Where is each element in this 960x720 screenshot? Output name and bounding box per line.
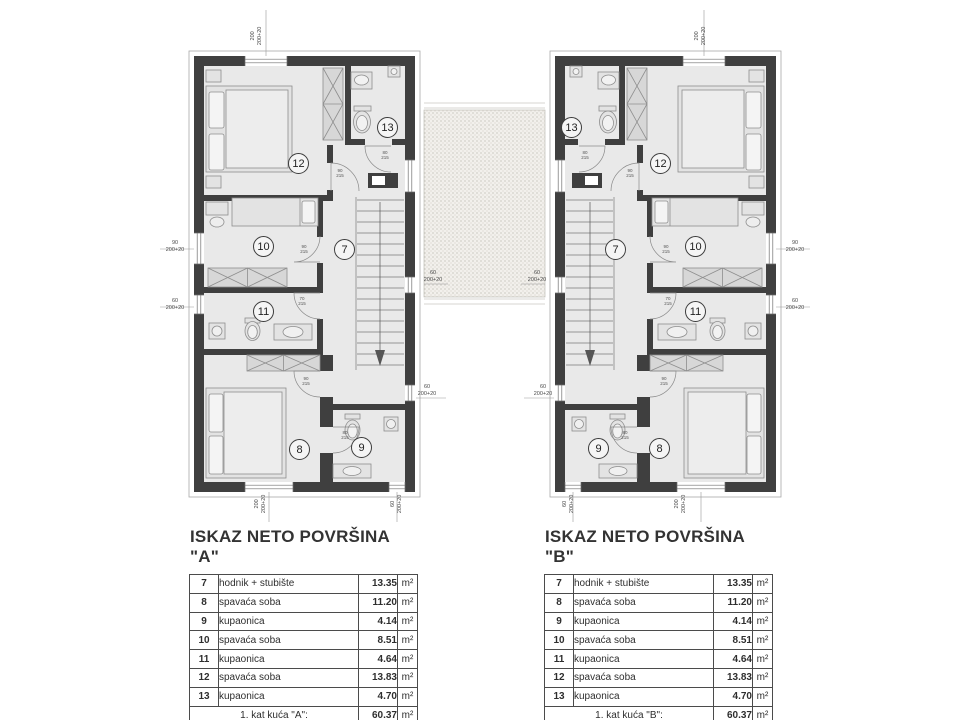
- room-circle-a-9: 9: [351, 437, 372, 458]
- cell-num: 8: [545, 593, 574, 612]
- cell-name: kupaonica: [219, 687, 359, 706]
- table-row: 12 spavaća soba 13.83 m²: [545, 668, 773, 687]
- floor-plan-drawing: [0, 0, 960, 524]
- room-circle-a-10: 10: [253, 236, 274, 257]
- door-label: 90 215: [623, 168, 637, 179]
- cell-value: 8.51: [714, 631, 753, 650]
- door-label: 90 215: [299, 376, 313, 387]
- table-row: 13 kupaonica 4.70 m²: [545, 687, 773, 706]
- dim-label: 60 200+20: [562, 491, 576, 517]
- cell-value: 13.83: [359, 668, 398, 687]
- cell-num: 13: [545, 687, 574, 706]
- cell-num: 7: [190, 575, 219, 594]
- table-row: 11 kupaonica 4.64 m²: [545, 650, 773, 669]
- cell-num: 11: [545, 650, 574, 669]
- area-table-a: ISKAZ NETO POVRŠINA "A" 7 hodnik + stubi…: [189, 527, 415, 720]
- cell-name: kupaonica: [219, 650, 359, 669]
- table-b: 7 hodnik + stubište 13.35 m² 8 spavaća s…: [544, 574, 773, 720]
- table-row: 11 kupaonica 4.64 m²: [190, 650, 418, 669]
- cell-unit: m²: [398, 612, 418, 631]
- cell-num: 12: [190, 668, 219, 687]
- cell-value: 4.70: [359, 687, 398, 706]
- cell-name: spavaća soba: [574, 631, 714, 650]
- cell-unit: m²: [753, 706, 773, 720]
- room-circle-b-7: 7: [605, 239, 626, 260]
- cell-num: 11: [190, 650, 219, 669]
- table-total-row: 1. kat kuća "A": 60.37 m²: [190, 706, 418, 720]
- cell-name: kupaonica: [574, 612, 714, 631]
- door-label: 80 215: [618, 430, 632, 441]
- cell-name: kupaonica: [574, 687, 714, 706]
- house-b: [550, 51, 781, 497]
- door-label: 70 215: [295, 296, 309, 307]
- area-table-b: ISKAZ NETO POVRŠINA "B" 7 hodnik + stubi…: [544, 527, 770, 720]
- table-total-row: 1. kat kuća "B": 60.37 m²: [545, 706, 773, 720]
- cell-value: 13.35: [359, 575, 398, 594]
- dim-label: 200 200+20: [694, 23, 708, 49]
- cell-name: spavaća soba: [219, 593, 359, 612]
- dim-label: 60 200+20: [420, 270, 446, 284]
- table-row: 10 spavaća soba 8.51 m²: [190, 631, 418, 650]
- room-circle-b-10: 10: [685, 236, 706, 257]
- cell-unit: m²: [398, 631, 418, 650]
- table-row: 12 spavaća soba 13.83 m²: [190, 668, 418, 687]
- cell-unit: m²: [398, 706, 418, 720]
- table-row: 7 hodnik + stubište 13.35 m²: [545, 575, 773, 594]
- dim-label: 200 200+20: [250, 23, 264, 49]
- dim-label: 90 200+20: [782, 240, 808, 254]
- cell-value: 11.20: [359, 593, 398, 612]
- room-circle-a-8: 8: [289, 439, 310, 460]
- door-label: 90 215: [659, 244, 673, 255]
- door-label: 90 215: [333, 168, 347, 179]
- cell-unit: m²: [753, 687, 773, 706]
- cell-unit: m²: [753, 631, 773, 650]
- cell-value: 4.14: [359, 612, 398, 631]
- room-circle-b-11: 11: [685, 301, 706, 322]
- cell-value: 4.64: [714, 650, 753, 669]
- cell-num: 13: [190, 687, 219, 706]
- room-circle-a-7: 7: [334, 239, 355, 260]
- dim-label: 90 200+20: [162, 240, 188, 254]
- table-row: 8 spavaća soba 11.20 m²: [190, 593, 418, 612]
- cell-value: 4.14: [714, 612, 753, 631]
- cell-value: 4.64: [359, 650, 398, 669]
- table-row: 9 kupaonica 4.14 m²: [190, 612, 418, 631]
- cell-num: 9: [545, 612, 574, 631]
- cell-name: spavaća soba: [219, 631, 359, 650]
- room-circle-a-11: 11: [253, 301, 274, 322]
- room-circle-a-12: 12: [288, 153, 309, 174]
- cell-total-label: 1. kat kuća "B":: [545, 706, 714, 720]
- cell-unit: m²: [398, 650, 418, 669]
- cell-unit: m²: [398, 575, 418, 594]
- cell-unit: m²: [753, 612, 773, 631]
- door-label: 80 215: [378, 150, 392, 161]
- cell-total-value: 60.37: [359, 706, 398, 720]
- cell-total-label: 1. kat kuća "A":: [190, 706, 359, 720]
- dim-label: 60 200+20: [524, 270, 550, 284]
- table-row: 7 hodnik + stubište 13.35 m²: [190, 575, 418, 594]
- cell-num: 8: [190, 593, 219, 612]
- cell-unit: m²: [398, 668, 418, 687]
- room-circle-b-9: 9: [588, 438, 609, 459]
- cell-unit: m²: [753, 668, 773, 687]
- table-row: 9 kupaonica 4.14 m²: [545, 612, 773, 631]
- cell-unit: m²: [753, 593, 773, 612]
- cell-name: spavaća soba: [574, 593, 714, 612]
- cell-value: 8.51: [359, 631, 398, 650]
- cell-unit: m²: [398, 687, 418, 706]
- cell-unit: m²: [398, 593, 418, 612]
- cell-name: kupaonica: [574, 650, 714, 669]
- room-circle-b-12: 12: [650, 153, 671, 174]
- cell-name: spavaća soba: [219, 668, 359, 687]
- door-label: 80 215: [338, 430, 352, 441]
- cell-value: 13.83: [714, 668, 753, 687]
- cell-name: kupaonica: [219, 612, 359, 631]
- cell-name: hodnik + stubište: [219, 575, 359, 594]
- door-label: 70 215: [661, 296, 675, 307]
- table-a-title: ISKAZ NETO POVRŠINA "A": [190, 527, 415, 567]
- room-circle-b-13: 13: [561, 117, 582, 138]
- dim-label: 60 200+20: [782, 298, 808, 312]
- dim-label: 60 200+20: [530, 384, 556, 398]
- cell-num: 10: [545, 631, 574, 650]
- table-b-title: ISKAZ NETO POVRŠINA "B": [545, 527, 770, 567]
- cell-num: 9: [190, 612, 219, 631]
- room-circle-a-13: 13: [377, 117, 398, 138]
- door-label: 90 215: [657, 376, 671, 387]
- cell-num: 7: [545, 575, 574, 594]
- table-row: 8 spavaća soba 11.20 m²: [545, 593, 773, 612]
- cell-name: spavaća soba: [574, 668, 714, 687]
- cell-name: hodnik + stubište: [574, 575, 714, 594]
- cell-total-value: 60.37: [714, 706, 753, 720]
- room-circle-b-8: 8: [649, 438, 670, 459]
- cell-value: 13.35: [714, 575, 753, 594]
- floor-plan-sheet: 12 13 7 10 11 8 9 12 13 7 10 11 8 9 200 …: [0, 0, 960, 720]
- cell-value: 4.70: [714, 687, 753, 706]
- cell-value: 11.20: [714, 593, 753, 612]
- table-row: 13 kupaonica 4.70 m²: [190, 687, 418, 706]
- cell-unit: m²: [753, 650, 773, 669]
- dim-label: 60 200+20: [162, 298, 188, 312]
- door-label: 90 215: [297, 244, 311, 255]
- cell-unit: m²: [753, 575, 773, 594]
- door-label: 80 215: [578, 150, 592, 161]
- table-a: 7 hodnik + stubište 13.35 m² 8 spavaća s…: [189, 574, 418, 720]
- cell-num: 10: [190, 631, 219, 650]
- cell-num: 12: [545, 668, 574, 687]
- dim-label: 200 200+20: [674, 491, 688, 517]
- dim-label: 60 200+20: [414, 384, 440, 398]
- table-row: 10 spavaća soba 8.51 m²: [545, 631, 773, 650]
- dim-label: 200 200+20: [254, 491, 268, 517]
- dim-label: 60 200+20: [390, 491, 404, 517]
